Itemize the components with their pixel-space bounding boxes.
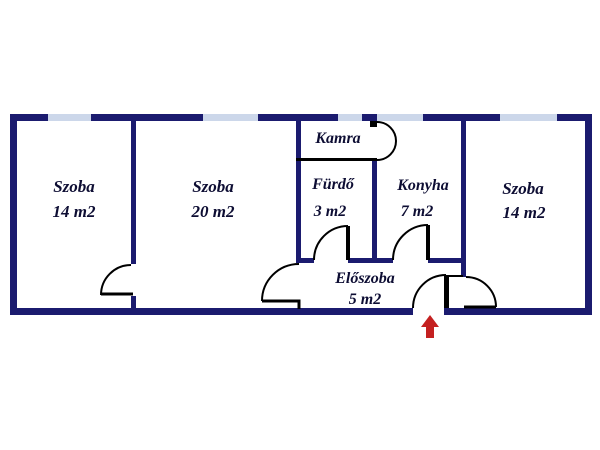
room-area-szoba-left: 14 m2 (53, 202, 96, 222)
room-label-furdo: Fürdő (312, 176, 354, 194)
floor-plan: Szoba 14 m2 Szoba 20 m2 Kamra Fürdő 3 m2… (0, 0, 600, 450)
room-label-konyha: Konyha (397, 177, 449, 195)
door-arc-szoba-left (101, 265, 131, 295)
room-area-szoba-mid: 20 m2 (192, 202, 235, 222)
entrance-arrow-icon (421, 315, 439, 338)
door-arc-furdo (314, 226, 348, 260)
door-leaf-szoba-mid (262, 301, 299, 309)
door-arc-szoba-mid (262, 264, 299, 301)
window-szoba-right (500, 114, 557, 121)
room-label-szoba-left: Szoba (53, 177, 95, 197)
room-area-furdo: 3 m2 (314, 203, 346, 221)
window-kamra (338, 114, 362, 121)
door-arc-kamra (377, 122, 396, 160)
door-arc-entrance (413, 275, 446, 308)
window-konyha (377, 114, 423, 121)
room-area-eloszoba: 5 m2 (349, 291, 381, 309)
room-label-szoba-right: Szoba (502, 179, 544, 199)
window-szoba-mid (203, 114, 258, 121)
door-arc-konyha (393, 225, 428, 260)
room-area-szoba-right: 14 m2 (503, 203, 546, 223)
room-label-eloszoba: Előszoba (335, 270, 395, 288)
doors-layer (0, 0, 600, 450)
room-label-szoba-mid: Szoba (192, 177, 234, 197)
window-szoba-left (48, 114, 91, 121)
room-area-konyha: 7 m2 (401, 203, 433, 221)
room-label-kamra: Kamra (315, 130, 360, 148)
door-leaf-furdo (346, 226, 350, 260)
door-leaf-entrance (444, 275, 449, 308)
door-leaf-konyha (426, 225, 430, 260)
door-arc-szoba-right (466, 277, 496, 307)
